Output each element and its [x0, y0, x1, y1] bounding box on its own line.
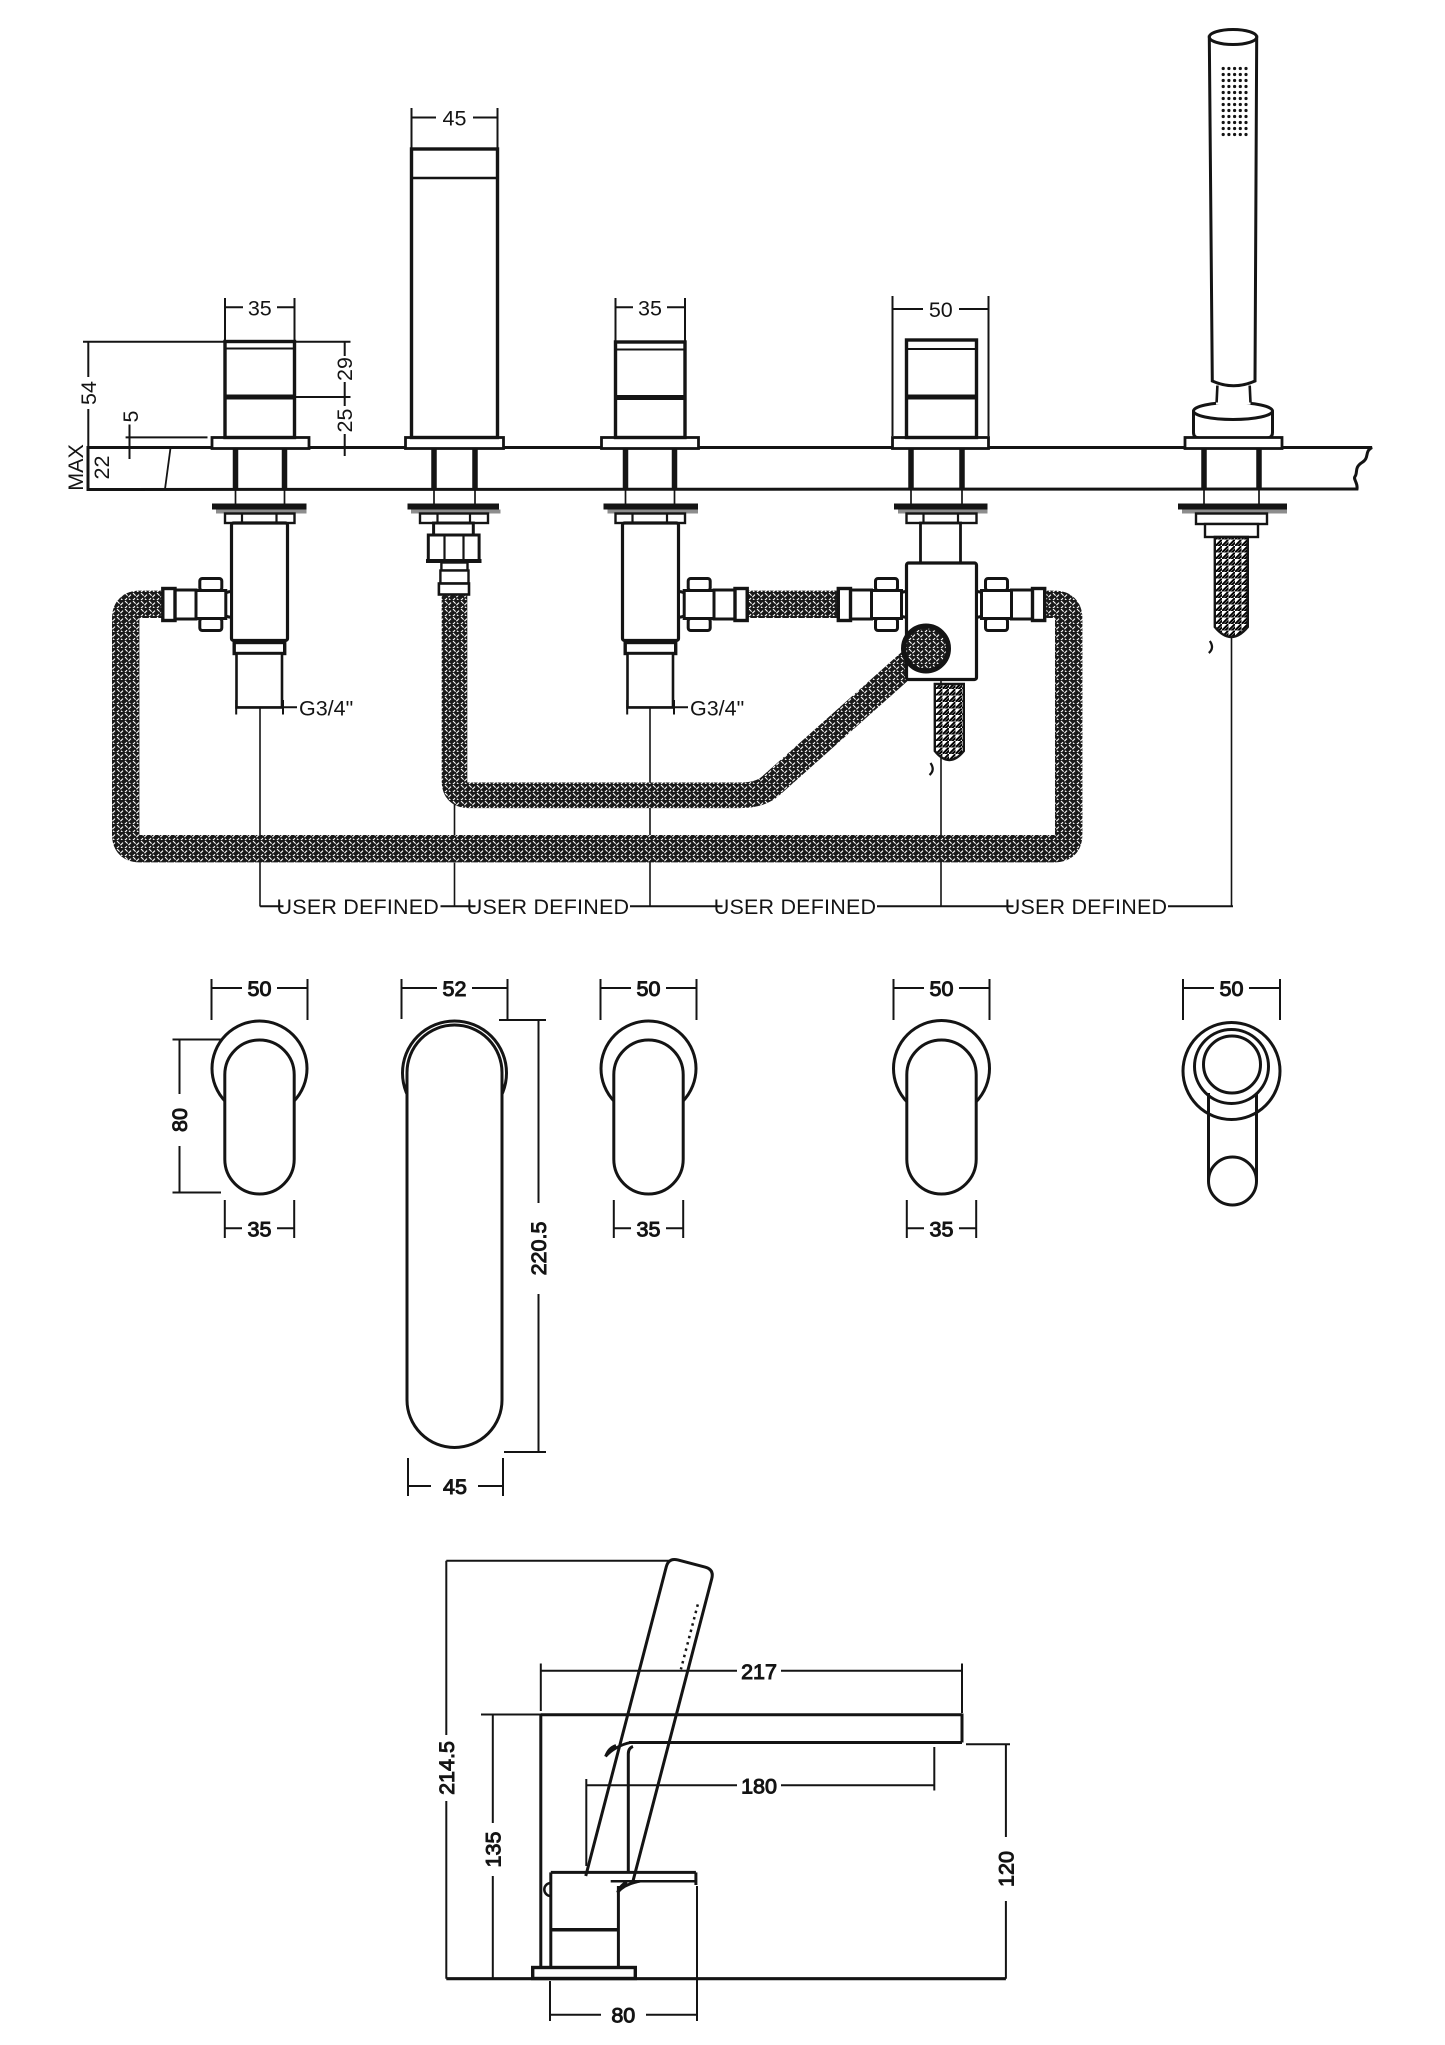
svg-text:USER DEFINED: USER DEFINED — [1005, 895, 1167, 919]
svg-text:35: 35 — [638, 296, 662, 320]
svg-text:G3/4": G3/4" — [299, 696, 353, 720]
svg-text:50: 50 — [1220, 977, 1244, 1001]
svg-text:120: 120 — [995, 1851, 1019, 1887]
svg-text:MAX: MAX — [64, 444, 88, 491]
svg-text:220.5: 220.5 — [527, 1222, 551, 1276]
svg-text:214.5: 214.5 — [435, 1741, 459, 1795]
svg-text:50: 50 — [637, 977, 661, 1001]
svg-text:USER DEFINED: USER DEFINED — [467, 895, 629, 919]
svg-text:5: 5 — [119, 410, 143, 422]
svg-text:35: 35 — [248, 296, 272, 320]
svg-text:22: 22 — [90, 456, 114, 480]
svg-text:135: 135 — [482, 1832, 506, 1868]
svg-text:50: 50 — [929, 298, 953, 322]
svg-text:45: 45 — [443, 107, 467, 131]
svg-text:50: 50 — [930, 977, 954, 1001]
svg-text:35: 35 — [637, 1217, 661, 1241]
svg-text:180: 180 — [741, 1774, 777, 1798]
svg-text:USER DEFINED: USER DEFINED — [277, 895, 439, 919]
svg-text:35: 35 — [930, 1217, 954, 1241]
svg-text:45: 45 — [443, 1475, 467, 1499]
svg-text:29: 29 — [333, 357, 357, 381]
svg-text:25: 25 — [333, 409, 357, 433]
svg-text:52: 52 — [443, 977, 467, 1001]
svg-text:35: 35 — [248, 1217, 272, 1241]
svg-text:G3/4": G3/4" — [690, 696, 744, 720]
svg-text:217: 217 — [741, 1660, 777, 1684]
svg-text:80: 80 — [168, 1108, 192, 1132]
svg-text:USER DEFINED: USER DEFINED — [714, 895, 876, 919]
svg-text:80: 80 — [611, 2004, 635, 2028]
svg-text:54: 54 — [77, 381, 101, 405]
svg-text:50: 50 — [248, 977, 272, 1001]
